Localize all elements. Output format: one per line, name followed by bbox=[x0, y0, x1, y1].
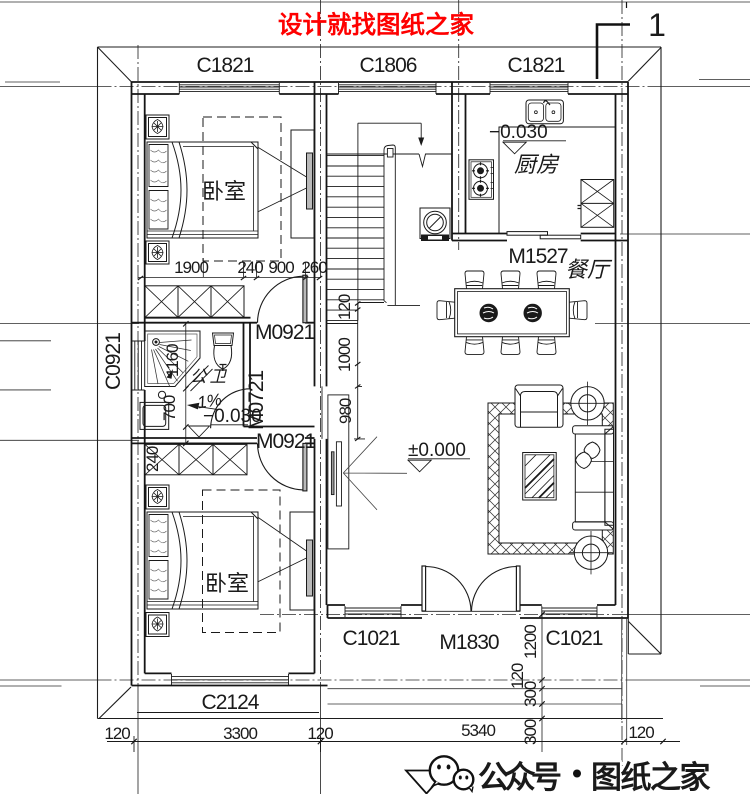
svg-text:卧室: 卧室 bbox=[202, 179, 246, 204]
svg-text:公卫: 公卫 bbox=[190, 368, 229, 386]
svg-text:M0921: M0921 bbox=[256, 430, 316, 453]
svg-text:980: 980 bbox=[336, 398, 355, 424]
svg-text:260: 260 bbox=[301, 258, 327, 277]
svg-text:公众号: 公众号 bbox=[478, 760, 561, 794]
svg-text:餐厅: 餐厅 bbox=[565, 257, 613, 282]
svg-text:1900: 1900 bbox=[174, 258, 208, 277]
svg-text:C1021: C1021 bbox=[546, 627, 603, 650]
svg-text:1000: 1000 bbox=[335, 338, 354, 372]
svg-text:3300: 3300 bbox=[223, 724, 257, 743]
svg-text:5340: 5340 bbox=[461, 721, 495, 740]
svg-text:120: 120 bbox=[104, 724, 130, 743]
svg-text:M1830: M1830 bbox=[439, 631, 499, 654]
svg-text:700: 700 bbox=[160, 395, 179, 421]
svg-text:C0921: C0921 bbox=[102, 333, 125, 390]
svg-text:240: 240 bbox=[237, 258, 263, 277]
svg-text:M0921: M0921 bbox=[255, 321, 315, 344]
svg-text:M1527: M1527 bbox=[508, 245, 568, 268]
svg-text:−0.030: −0.030 bbox=[489, 122, 548, 143]
svg-text:C1821: C1821 bbox=[197, 54, 254, 77]
svg-text:1200: 1200 bbox=[521, 625, 540, 659]
svg-text:300: 300 bbox=[521, 719, 540, 745]
svg-text:1160: 1160 bbox=[163, 344, 182, 377]
svg-text:±0.000: ±0.000 bbox=[408, 440, 466, 461]
svg-text:图纸之家: 图纸之家 bbox=[591, 760, 710, 794]
svg-text:C1806: C1806 bbox=[360, 54, 417, 77]
svg-text:120: 120 bbox=[307, 724, 333, 743]
svg-text:C2124: C2124 bbox=[202, 691, 260, 714]
svg-text:240: 240 bbox=[143, 446, 162, 472]
svg-text:120: 120 bbox=[628, 723, 654, 742]
svg-text:C1021: C1021 bbox=[343, 627, 400, 650]
svg-text:300: 300 bbox=[521, 681, 540, 707]
svg-text:设计就找图纸之家: 设计就找图纸之家 bbox=[278, 10, 474, 39]
svg-text:C1821: C1821 bbox=[508, 54, 565, 77]
svg-text:1: 1 bbox=[648, 7, 666, 43]
svg-text:厨房: 厨房 bbox=[514, 152, 560, 177]
svg-text:卧室: 卧室 bbox=[205, 571, 249, 596]
svg-text:900: 900 bbox=[268, 258, 294, 277]
svg-text:120: 120 bbox=[335, 294, 354, 320]
svg-text:1%: 1% bbox=[196, 390, 223, 412]
